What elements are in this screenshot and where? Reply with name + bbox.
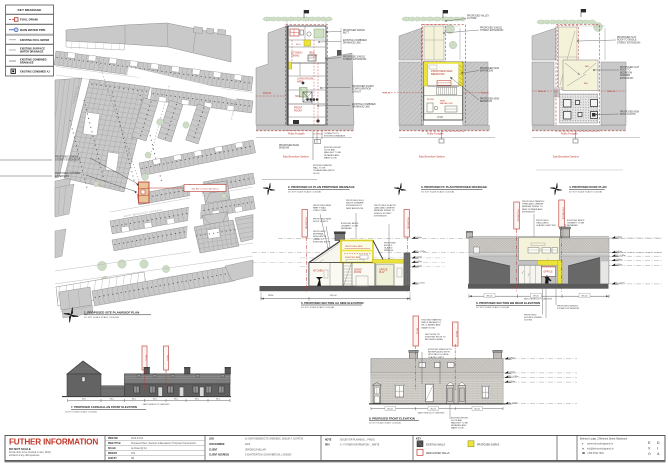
svg-text:ROOF LIGHTS: ROOF LIGHTS [313, 221, 328, 223]
svg-text:Public Footpath: Public Footpath [288, 133, 305, 136]
svg-text:ROOM: ROOM [354, 272, 361, 274]
svg-text:East Benedicts Gardens: East Benedicts Gardens [553, 156, 580, 159]
svg-text:GLAZED UNITS: GLAZED UNITS [428, 356, 444, 359]
svg-text:PROPOSED NEW: PROPOSED NEW [480, 68, 500, 70]
svg-text:DO NOT SCALE SCALE 1:100@A1: DO NOT SCALE SCALE 1:100@A1 [369, 421, 402, 424]
svg-text:THIRD AND CEMENT: THIRD AND CEMENT [522, 203, 544, 206]
svg-text:RED-05: RED-05 [608, 91, 617, 93]
svg-text:RETAINED AND: RETAINED AND [324, 154, 340, 157]
svg-text:Proposed Plans, Sections & Ele: Proposed Plans, Sections & Elevations / … [131, 442, 197, 445]
svg-text:a: a [547, 258, 548, 260]
svg-text:ROOM: ROOM [294, 109, 301, 112]
svg-text:ROOF LIGHTS: ROOF LIGHTS [620, 114, 636, 116]
svg-text:NEW DORMER AND: NEW DORMER AND [522, 208, 543, 211]
svg-text:NOTE: NOTE [325, 440, 332, 442]
svg-text:BEDROOM: BEDROOM [431, 72, 444, 76]
svg-text:CONFIGURATION: CONFIGURATION [352, 88, 371, 91]
svg-text:UPVC/ALU DOUBLE: UPVC/ALU DOUBLE [428, 353, 449, 356]
svg-text:EXISTING PAINTED: EXISTING PAINTED [422, 319, 443, 322]
svg-text:DRAINAGE: DRAINAGE [20, 61, 34, 65]
svg-text:All site dims to be checked on: All site dims to be checked on site. Not… [9, 451, 52, 454]
svg-text:STOREY EXTENSION: STOREY EXTENSION [617, 42, 641, 44]
svg-text:+6.80m: +6.80m [509, 358, 516, 360]
svg-text:DO NOT SCALE SCALE 1:100@A1: DO NOT SCALE SCALE 1:100@A1 [288, 190, 322, 193]
svg-text:OFFICE: OFFICE [543, 270, 553, 274]
svg-text:+353 8790 7904: +353 8790 7904 [587, 453, 604, 455]
svg-text:SAINT BENEDICTS GARDENS: SAINT BENEDICTS GARDENS [418, 412, 445, 415]
svg-text:BUTT: BUTT [343, 33, 350, 35]
svg-text:WD-04: WD-04 [330, 295, 337, 297]
svg-text:PW-SITE BD: PW-SITE BD [516, 210, 518, 222]
svg-text:WD-1: WD-1 [153, 399, 157, 401]
svg-text:+2.60m: +2.60m [416, 261, 423, 263]
svg-text:PROPOSED PLASTIC: PROPOSED PLASTIC [374, 204, 397, 207]
svg-text:GLAZED SHUTTER: GLAZED SHUTTER [536, 224, 556, 227]
svg-text:KITCHEN: KITCHEN [313, 271, 323, 273]
svg-text:4. PROPOSED ROOF PLAN: 4. PROPOSED ROOF PLAN [569, 185, 606, 189]
svg-text:6. PROPOSED SECTION BB REAR E: 6. PROPOSED SECTION BB REAR ELEVATION [476, 301, 540, 305]
svg-text:BATHROOM: BATHROOM [440, 102, 453, 105]
svg-text:A: A [657, 452, 660, 456]
svg-text:DO NOT SCALE SCALE 1:200@A1: DO NOT SCALE SCALE 1:200@A1 [65, 410, 98, 413]
svg-text:PW-SITE BD: PW-SITE BD [407, 217, 409, 229]
svg-text:+2.60m: +2.60m [509, 381, 516, 383]
svg-text:CHD BY: CHD BY [108, 458, 117, 460]
svg-text:CLIENT ADDRESS: CLIENT ADDRESS [209, 454, 230, 457]
svg-text:WD-05: WD-05 [581, 296, 588, 298]
svg-text:GL +0.00m: GL +0.00m [416, 282, 426, 284]
svg-text:9 CHATTERTON, DONNYBROOK, LOND: 9 CHATTERTON, DONNYBROOK, LONDON [245, 454, 292, 457]
svg-text:MADE GOOD: MADE GOOD [451, 427, 464, 430]
svg-text:DOOR AND: DOOR AND [324, 149, 336, 152]
svg-text:DEMOLISHED WALLS: DEMOLISHED WALLS [426, 452, 450, 455]
svg-text:3x SAINT BENEDICTS GARDENS, DU: 3x SAINT BENEDICTS GARDENS, DUBLIN 7, D0… [245, 438, 304, 441]
svg-text:+2.40m: +2.40m [416, 265, 423, 267]
svg-text:+2.70m: +2.70m [416, 257, 423, 259]
svg-text:PROPOSED STAIRS: PROPOSED STAIRS [352, 85, 374, 88]
svg-text:FUTHER INFORMATION: FUTHER INFORMATION [9, 438, 98, 447]
svg-text:+6.80m: +6.80m [416, 237, 423, 239]
svg-text:UTILITY: UTILITY [309, 55, 318, 57]
svg-text:+6.80m: +6.80m [616, 237, 623, 239]
svg-text:EXTENSION: EXTENSION [620, 78, 634, 80]
svg-text:PROPOSED BED: PROPOSED BED [345, 246, 363, 248]
svg-text:WD-1: WD-1 [132, 399, 136, 401]
svg-text:3. PROPOSED FF PLAN PROPOSED: 3. PROPOSED FF PLAN PROPOSED DRAINAGE [421, 185, 487, 189]
svg-text:INSULATION: INSULATION [313, 235, 326, 238]
svg-text:JOB NUMBER: JOB NUMBER [209, 444, 225, 446]
svg-text:FOUL DRAIN: FOUL DRAIN [20, 18, 38, 22]
svg-text:BE REPLACED WITH: BE REPLACED WITH [428, 351, 450, 354]
svg-text:DOORS: DOORS [524, 320, 533, 322]
svg-text:FFL +2.85m: FFL +2.85m [416, 251, 427, 253]
svg-text:EXISTING PAINTED: EXISTING PAINTED [313, 164, 333, 167]
svg-text:EXISTING FOUL WATER: EXISTING FOUL WATER [20, 38, 49, 42]
svg-text:SCALE: SCALE [108, 447, 116, 450]
svg-text:WD-1: WD-1 [195, 399, 199, 401]
svg-text:DORMER: DORMER [620, 75, 631, 77]
svg-text:MADE GOOD: MADE GOOD [324, 156, 337, 159]
svg-text:7. PROPOSED CARSHALLAN FRONT: 7. PROPOSED CARSHALLAN FRONT ELEVATION [71, 405, 137, 409]
svg-text:EXISTING BED: EXISTING BED [345, 257, 361, 259]
svg-text:STOREY EXTENSION: STOREY EXTENSION [480, 30, 504, 32]
svg-text:WD-05: WD-05 [387, 409, 393, 411]
svg-text:PROPOSED FLAT: PROPOSED FLAT [620, 66, 640, 69]
svg-text:WD-1: WD-1 [174, 399, 178, 401]
svg-text:VOID: VOID [437, 116, 443, 119]
svg-text:MADE GOOD: MADE GOOD [422, 326, 436, 329]
svg-text:KEY DRAINAGE: KEY DRAINAGE [18, 8, 42, 12]
svg-text:DO NOT SCALE SCALE 1:100@A1: DO NOT SCALE SCALE 1:100@A1 [476, 306, 510, 309]
svg-text:SAINT BENEDICTS GARDENS: SAINT BENEDICTS GARDENS [143, 403, 170, 406]
svg-text:SLIDING GLAZED: SLIDING GLAZED [524, 316, 543, 319]
svg-text:architect of any discrepancies: architect of any discrepancies. [9, 454, 40, 457]
svg-text:ROAD: ROAD [263, 92, 271, 95]
svg-text:PATH: PATH [268, 294, 274, 297]
svg-text:▾: ▾ [582, 443, 583, 446]
svg-text:EXTENSION: EXTENSION [374, 215, 387, 217]
svg-text:ROOF TO: ROOF TO [620, 70, 631, 72]
svg-text:CLEANED AND BRICK: CLEANED AND BRICK [313, 169, 335, 172]
svg-text:JOB: JOB [209, 439, 214, 441]
svg-text:Site Ref: 3x Saint Benedicts: Site Ref: 3x Saint Benedicts [191, 187, 219, 190]
svg-text:GOOD: GOOD [313, 173, 320, 175]
svg-text:I: I [657, 447, 658, 451]
svg-text:CLIENT: CLIENT [209, 449, 218, 451]
svg-text:DO NOT SCALE SCALE 1:100@A1: DO NOT SCALE SCALE 1:100@A1 [569, 190, 603, 193]
svg-text:INTERNAL: INTERNAL [313, 233, 325, 236]
svg-text:1. PROPOSED SITE PLAN/ROOF PL: 1. PROPOSED SITE PLAN/ROOF PLAN [84, 311, 139, 315]
svg-text:WD-05: WD-05 [430, 409, 436, 411]
svg-text:PW-01: PW-01 [144, 355, 146, 362]
svg-text:BRICK FACADE TO: BRICK FACADE TO [422, 321, 442, 324]
svg-text:PROPOSED NEW: PROPOSED NEW [480, 99, 500, 101]
svg-text:SE-05: SE-05 [533, 296, 539, 298]
svg-text:PROPOSED VALLEY: PROPOSED VALLEY [467, 15, 490, 18]
svg-text:BEDROOM: BEDROOM [480, 101, 492, 103]
svg-text:EXTENSION: EXTENSION [522, 211, 535, 213]
svg-text:PW-01: PW-01 [166, 355, 168, 362]
svg-text:WD-05: WD-05 [474, 409, 480, 411]
svg-text:WC/SH: WC/SH [427, 99, 434, 101]
svg-text:PW-SITE BD: PW-SITE BD [561, 208, 563, 220]
svg-text:As Noted @ A1: As Noted @ A1 [131, 447, 147, 450]
svg-text:LAND AND CEMENT: LAND AND CEMENT [374, 207, 395, 210]
svg-text:REV: REV [325, 445, 330, 447]
svg-text:BE CLEANED AND: BE CLEANED AND [422, 324, 441, 327]
svg-text:RED-05: RED-05 [538, 91, 547, 93]
svg-text:O: O [648, 452, 651, 456]
svg-text:VERONICA MILLAR: VERONICA MILLAR [245, 448, 266, 451]
svg-text:FALL: FALL [584, 82, 588, 85]
svg-text:✉: ✉ [582, 447, 584, 450]
svg-text:KEY: KEY [416, 437, 421, 440]
svg-text:WINDOW: WINDOW [384, 250, 393, 252]
svg-text:DWG TITLE: DWG TITLE [108, 443, 121, 445]
svg-text:WATER DRAINAGE: WATER DRAINAGE [20, 50, 44, 54]
svg-text:DRAINAGE LINE: DRAINAGE LINE [352, 106, 370, 109]
svg-text:+2.60m: +2.60m [616, 259, 623, 261]
svg-text:DINING: DINING [291, 54, 300, 57]
svg-text:STOREY EXTENSION: STOREY EXTENSION [557, 308, 580, 310]
svg-text:DINING: DINING [354, 270, 362, 272]
svg-text:2. PROPOSED GF PLAN PROPOSED: 2. PROPOSED GF PLAN PROPOSED DRAINAGE [288, 185, 355, 189]
svg-text:2012-P-100: 2012-P-100 [131, 438, 144, 440]
svg-text:2022: 2022 [245, 444, 251, 446]
svg-text:East Benedicts Gardens: East Benedicts Gardens [419, 156, 446, 159]
svg-text:PD1-05: PD1-05 [383, 93, 391, 95]
svg-text:GL +0.00m: GL +0.00m [616, 283, 626, 285]
svg-text:EXTENSION: EXTENSION [55, 175, 69, 178]
svg-text:SAINT BENEDICTS GARDENS: SAINT BENEDICTS GARDENS [524, 297, 553, 300]
svg-text:GUTTER: GUTTER [467, 18, 477, 20]
svg-text:GL +0.00m: GL +0.00m [509, 402, 519, 404]
svg-text:HALL: HALL [295, 95, 301, 98]
svg-text:EXISTING COMBINED: EXISTING COMBINED [352, 104, 376, 106]
svg-text:D: D [657, 441, 660, 445]
svg-text:EXISTING COMBINED: EXISTING COMBINED [343, 40, 367, 42]
svg-text:A - FUTHER INFORMATION _ WRITE: A - FUTHER INFORMATION _ WRITE [340, 444, 380, 447]
svg-text:BATHROOM: BATHROOM [480, 70, 493, 73]
svg-text:ISSUE FOR PLANNING _ PW001: ISSUE FOR PLANNING _ PW001 [340, 439, 376, 442]
svg-text:FALL: FALL [585, 65, 589, 68]
svg-text:DO NOT SCALE SCALE 1:500@A1: DO NOT SCALE SCALE 1:500@A1 [84, 316, 120, 319]
svg-text:DO NOT SCALE SCALE 1:100@A1: DO NOT SCALE SCALE 1:100@A1 [301, 306, 335, 309]
svg-text:PROPOSED REAR: PROPOSED REAR [279, 144, 299, 147]
svg-text:EXISTING DRAINAGE: EXISTING DRAINAGE [324, 134, 346, 137]
svg-text:EXISTING WALLS: EXISTING WALLS [426, 443, 446, 446]
svg-text:NEW: NEW [309, 53, 315, 55]
svg-text:PROPOSED FLAT: PROPOSED FLAT [617, 36, 637, 39]
svg-text:DO NOT SCALE SCALE 1:100@A1: DO NOT SCALE SCALE 1:100@A1 [421, 190, 455, 193]
svg-text:PROPOSED SINGLE: PROPOSED SINGLE [480, 28, 503, 30]
svg-text:WD-1: WD-1 [82, 399, 86, 401]
svg-text:PROPOSED PAINTED: PROPOSED PAINTED [522, 200, 545, 203]
svg-text:WD-05: WD-05 [486, 296, 493, 298]
svg-text:SB: SB [131, 458, 135, 460]
svg-text:PW-02: PW-02 [455, 331, 457, 338]
svg-text:RETAINED: RETAINED [567, 224, 578, 227]
svg-text:East Benedicts Gardens: East Benedicts Gardens [283, 156, 310, 159]
svg-text:Belmont Lodge, 2 Belmont Stree: Belmont Lodge, 2 Belmont Street, Blackro… [580, 438, 628, 441]
svg-text:WINDOW: WINDOW [279, 148, 290, 150]
svg-text:FFL +2.85m: FFL +2.85m [509, 376, 520, 378]
svg-text:ROOF TO SINGLE: ROOF TO SINGLE [617, 40, 637, 42]
svg-text:EXISTING ROOF: EXISTING ROOF [313, 241, 331, 243]
svg-text:WD-1: WD-1 [110, 399, 114, 401]
svg-text:LAYOUT: LAYOUT [352, 90, 362, 93]
svg-text:PROPOSED NEW: PROPOSED NEW [620, 112, 640, 114]
svg-text:PROPOSED SINGLE: PROPOSED SINGLE [343, 57, 366, 59]
svg-text:PROPOSED WATER: PROPOSED WATER [343, 29, 365, 32]
svg-text:WALL TO BE: WALL TO BE [313, 167, 326, 170]
svg-text:DWN BY: DWN BY [108, 453, 118, 455]
svg-text:BEDROOM: BEDROOM [620, 72, 632, 74]
svg-text:WD-1: WD-1 [216, 399, 220, 401]
svg-text:PW-SITE BD: PW-SITE BD [305, 217, 307, 229]
svg-text:W.Cs: W.Cs [296, 44, 302, 46]
svg-text:RETAINED: RETAINED [341, 227, 352, 230]
svg-text:NEW BEDROOM: NEW BEDROOM [346, 208, 363, 210]
svg-text:DWG NO: DWG NO [108, 438, 118, 440]
svg-text:☎: ☎ [582, 452, 585, 455]
svg-text:PLAY: PLAY [379, 271, 385, 274]
svg-text:DO NOT SCALE: DO NOT SCALE [9, 447, 31, 451]
svg-text:STOREY EXTENSION: STOREY EXTENSION [343, 59, 367, 61]
svg-text:PW-02: PW-02 [416, 328, 418, 335]
svg-text:RAIN WATER PIPE: RAIN WATER PIPE [20, 28, 46, 32]
svg-text:STRUCTURE: STRUCTURE [313, 210, 327, 212]
svg-text:PARTY WALL: PARTY WALL [313, 207, 327, 210]
svg-text:FANLIGHT TO BE: FANLIGHT TO BE [324, 151, 341, 154]
svg-text:5. PROPOSED SECTION AA SIDE E: 5. PROPOSED SECTION AA SIDE ELEVATION [301, 301, 363, 305]
svg-text:info@belmontlodgearch.ie: info@belmontlodgearch.ie [587, 447, 614, 450]
svg-text:EXISTING COMBINED AJ: EXISTING COMBINED AJ [20, 70, 50, 73]
svg-text:OFFICE: OFFICE [379, 270, 388, 272]
svg-text:STOREY EXTENSION: STOREY EXTENSION [55, 158, 80, 161]
svg-text:BE DEMOLISHED: BE DEMOLISHED [425, 339, 443, 341]
svg-text:www.belmontlodgearch.ie: www.belmontlodgearch.ie [587, 443, 614, 446]
svg-text:D.M: D.M [131, 453, 135, 455]
svg-text:+5.40m: +5.40m [616, 251, 623, 253]
svg-text:PROPOSED WORKS: PROPOSED WORKS [477, 444, 500, 446]
svg-text:+5.40m: +5.40m [509, 372, 516, 374]
svg-text:DRAINAGE LINE: DRAINAGE LINE [343, 42, 361, 45]
svg-text:8. PROPOSED FRONT ELEVATION: 8. PROPOSED FRONT ELEVATION [369, 416, 415, 420]
svg-text:+2.40m: +2.40m [616, 264, 623, 266]
svg-text:FFL +2.85m: FFL +2.85m [616, 255, 627, 257]
